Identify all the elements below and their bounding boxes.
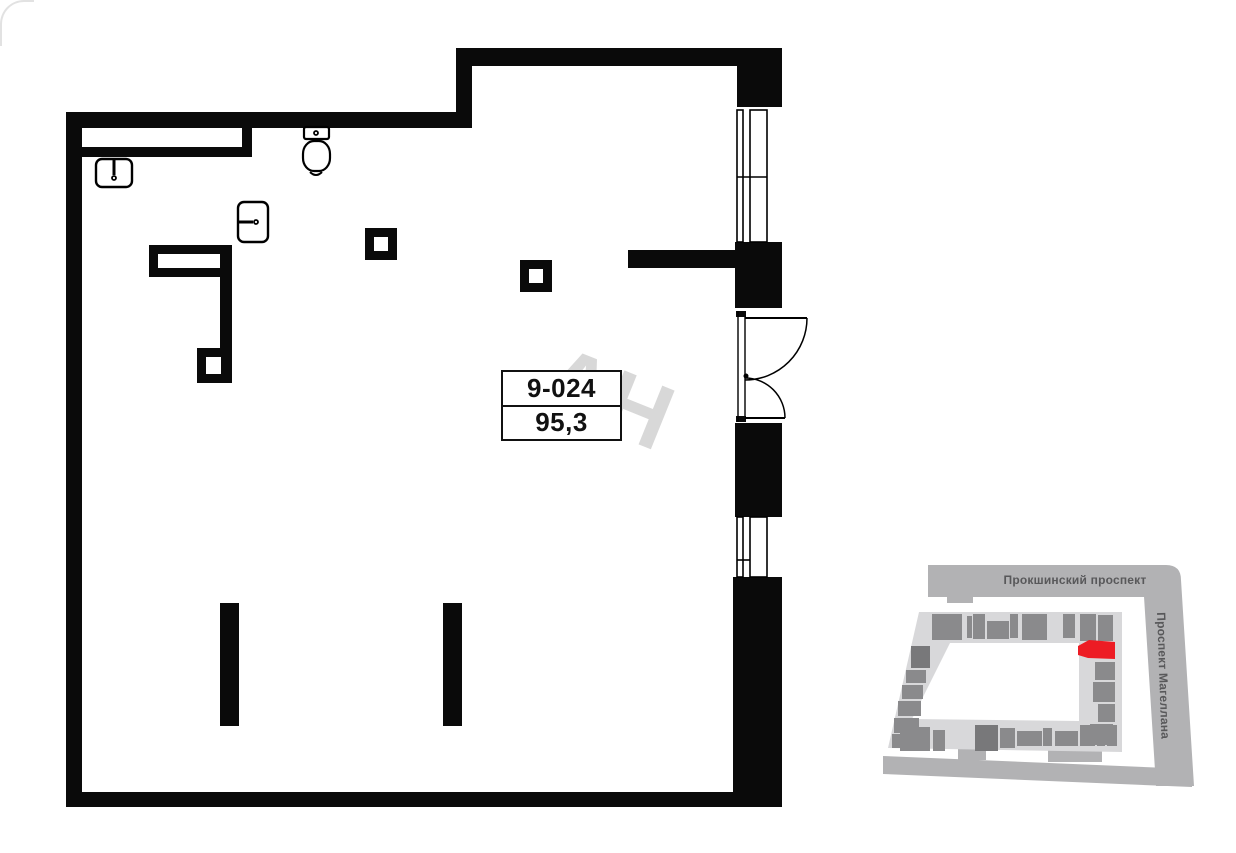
toilet-icon [303, 127, 330, 175]
street-label-top: Прокшинский проспект [970, 573, 1180, 587]
sink-icon [237, 202, 268, 242]
site-map-drawing [880, 558, 1236, 803]
sink-icon [96, 158, 132, 187]
fixtures [96, 127, 330, 242]
unit-number: 9-024 [503, 372, 620, 405]
entrance-door [738, 311, 807, 422]
walls [66, 48, 782, 807]
unit-area: 95,3 [503, 405, 620, 440]
unit-label-box: 9-024 95,3 [501, 370, 622, 441]
floor-plan-drawing [0, 0, 820, 853]
floorplan-page: АН 9-024 95,3 Прокшинский проспект Просп… [0, 0, 1236, 853]
